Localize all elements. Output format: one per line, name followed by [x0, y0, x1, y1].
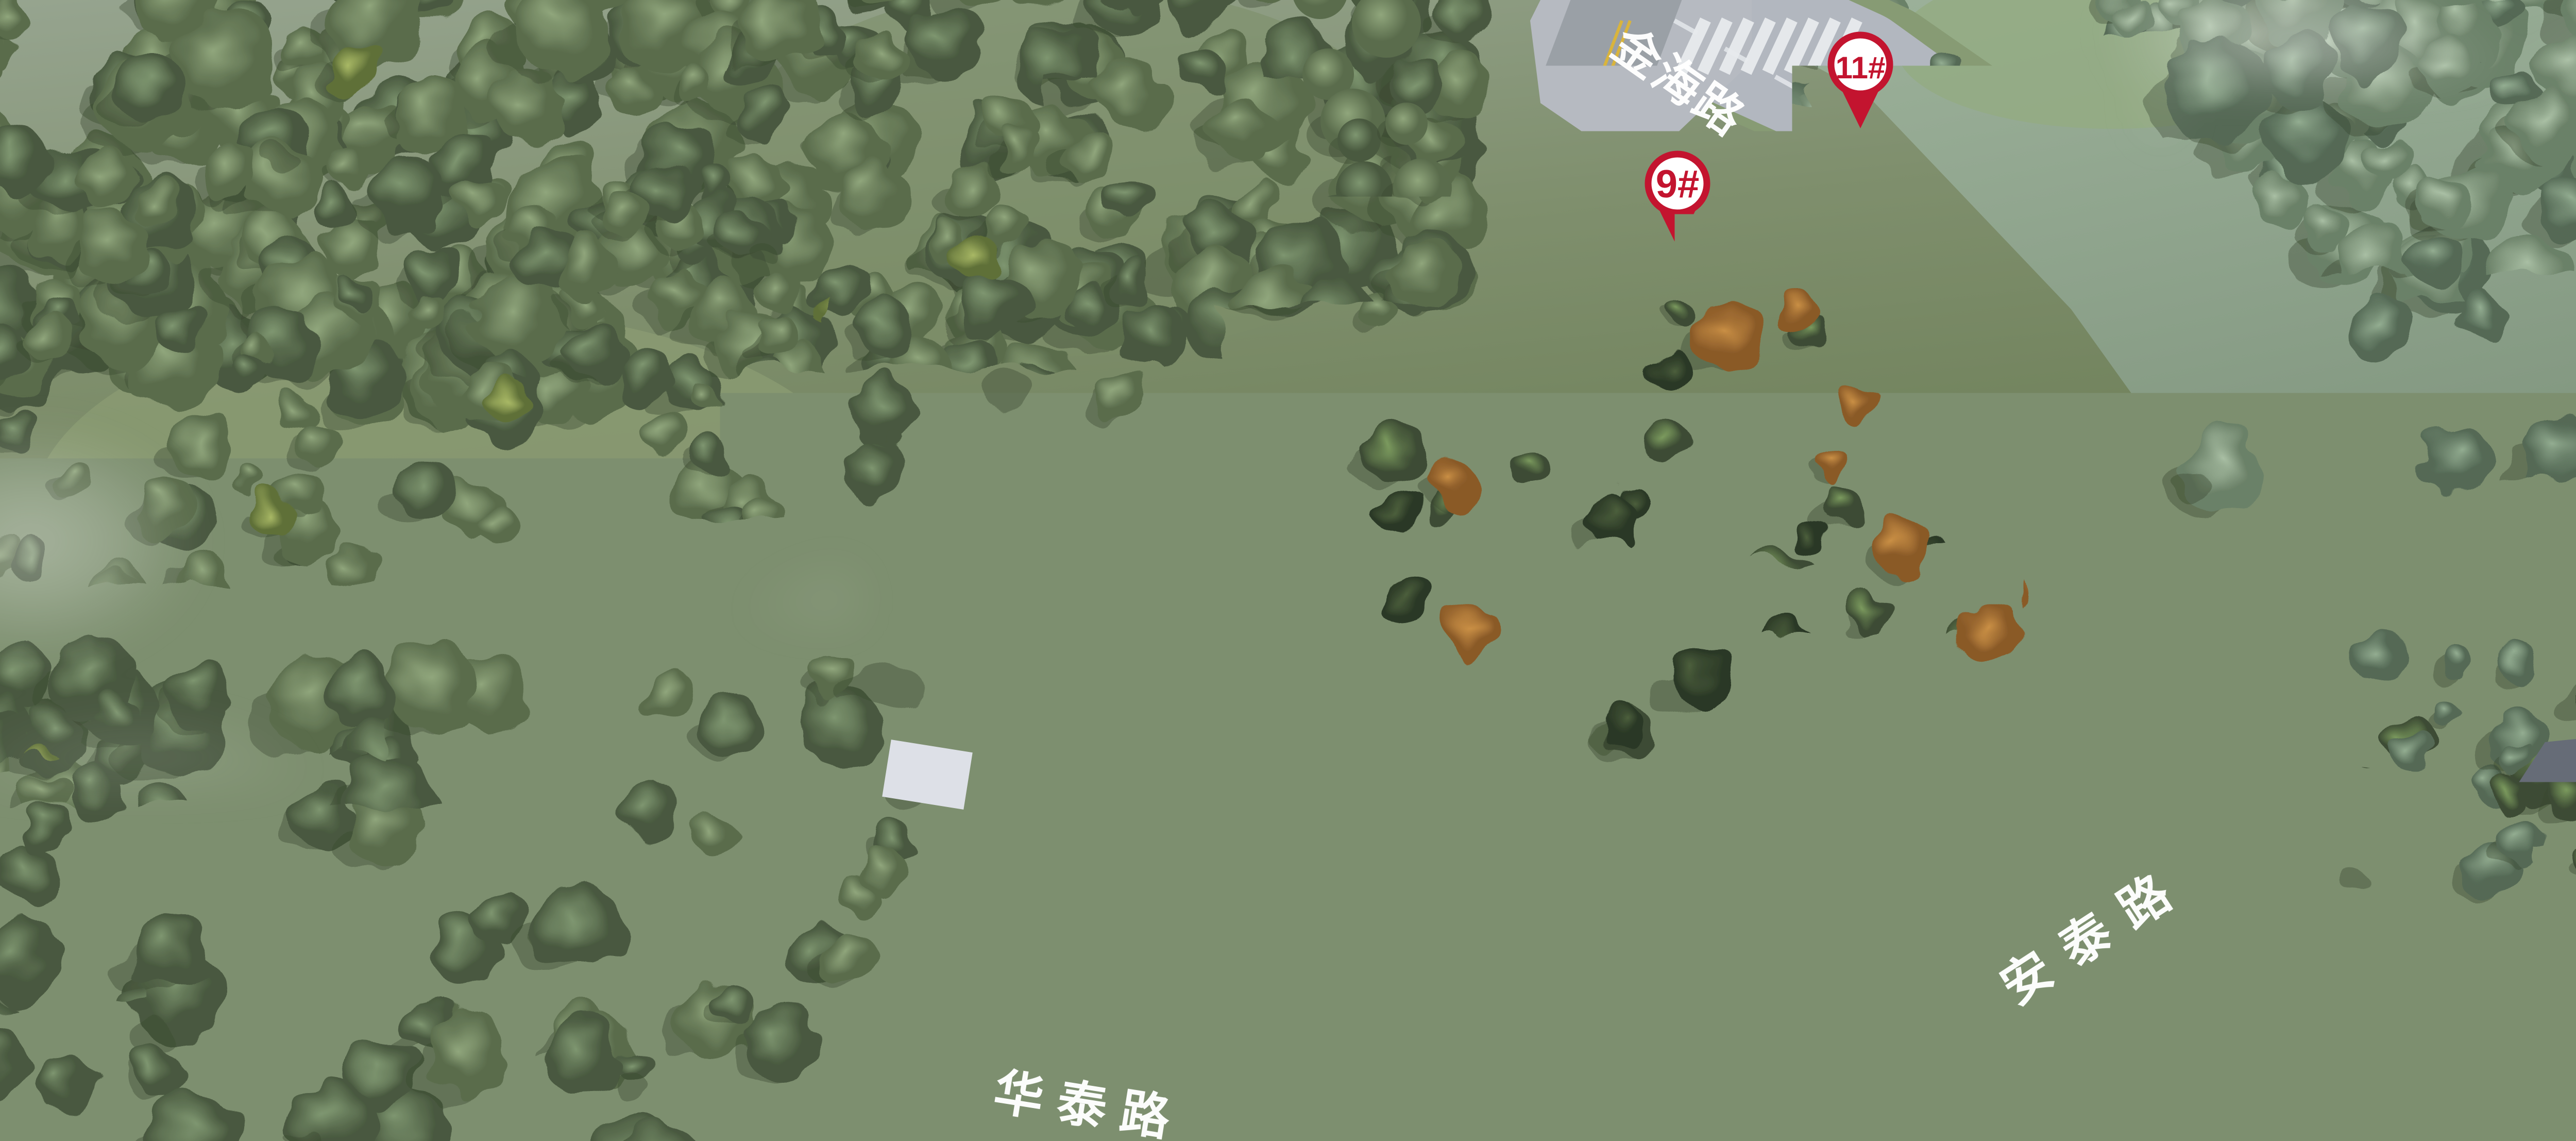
- svg-text:6#: 6#: [1442, 364, 1485, 408]
- svg-text:幼儿园: 幼儿园: [1735, 866, 1807, 888]
- svg-text:12#: 12#: [2173, 265, 2225, 300]
- svg-text:7#: 7#: [2002, 472, 2046, 515]
- svg-text:11#: 11#: [1836, 51, 1886, 85]
- svg-text:4#: 4#: [1341, 618, 1385, 662]
- svg-text:1#: 1#: [1031, 782, 1075, 826]
- svg-text:9#: 9#: [1656, 162, 1700, 206]
- svg-text:2#: 2#: [1526, 877, 1569, 920]
